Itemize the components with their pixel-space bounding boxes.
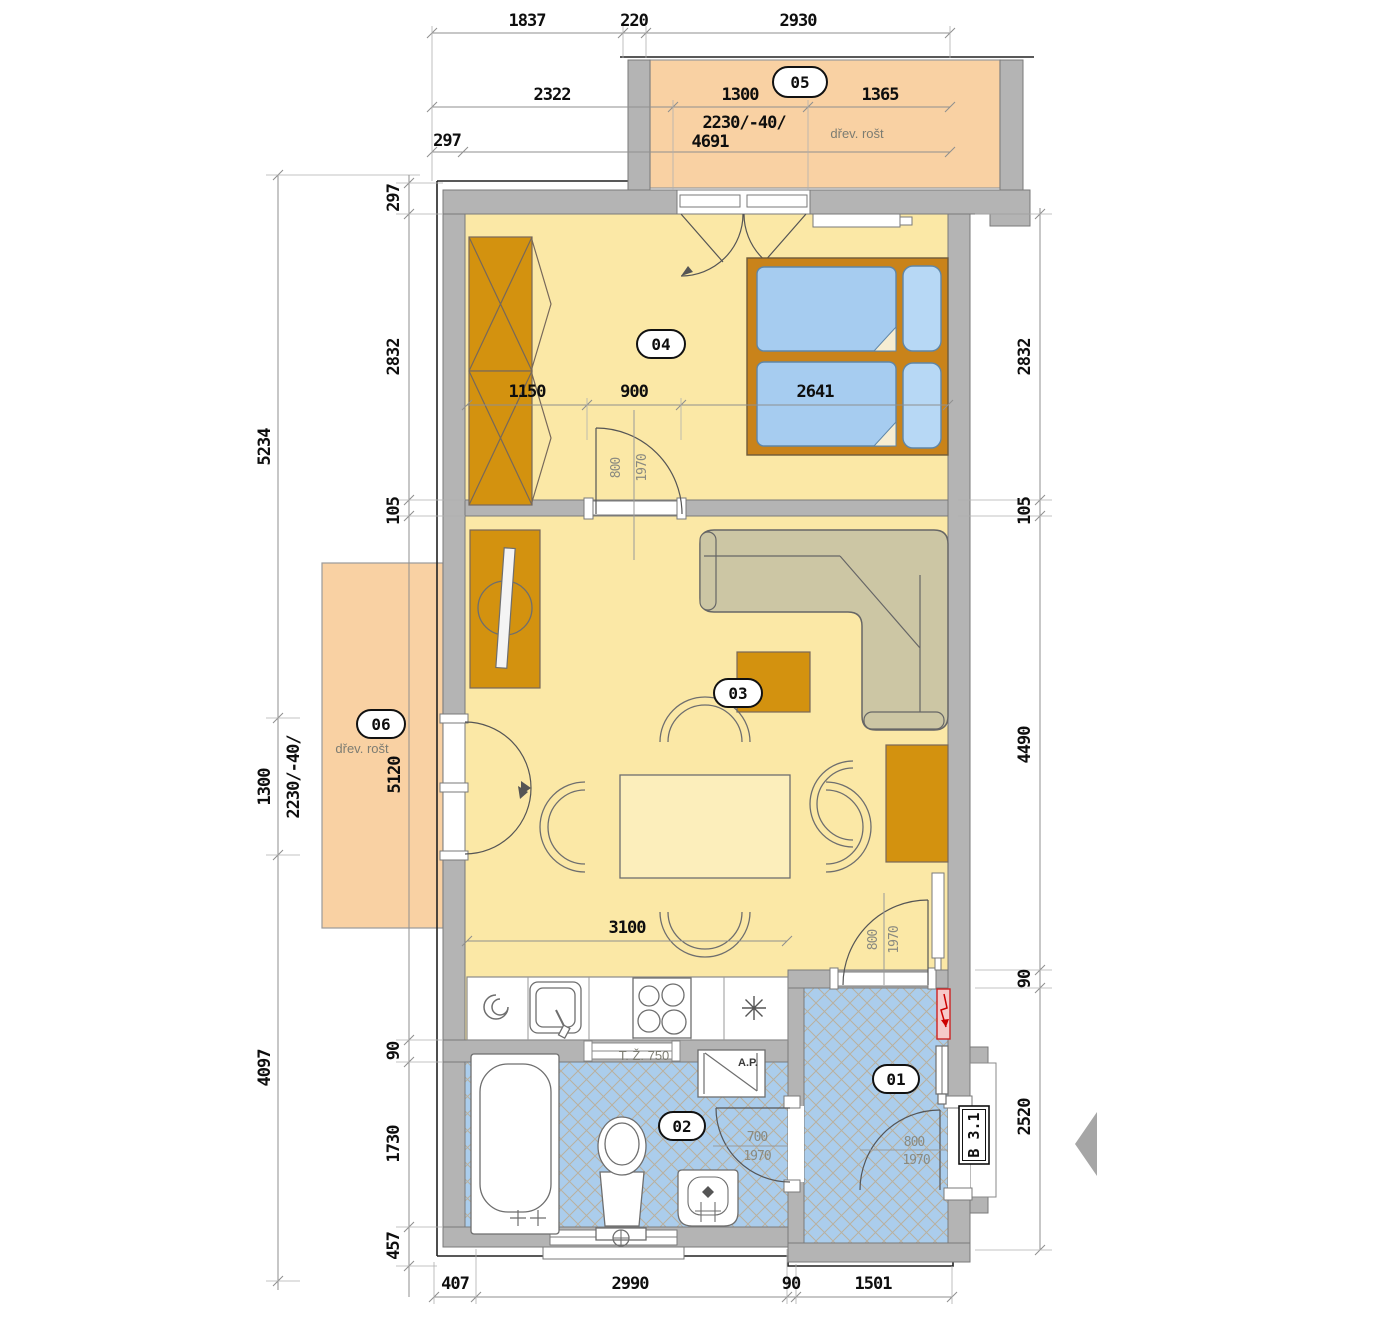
dim-top-2930: 2930 [780,11,818,31]
kitchen-window-label: T. Ž. 750 [619,1048,670,1063]
wall-hall-bottom [788,1243,970,1262]
dim-4490: 4490 [1015,726,1035,764]
dim-407: 407 [441,1274,469,1294]
bedroom-radiator [813,214,912,227]
dim-90l: 90 [384,1041,404,1060]
living-radiator [932,873,944,970]
bedroom-door-h: 1970 [635,454,650,481]
wall-bedroom-living [465,500,948,516]
living-door-w: 800 [866,930,881,951]
double-bed [747,258,948,455]
balcony-top-pillar-left [628,60,650,190]
mattress-bottom [757,362,896,446]
room-label-04-text: 04 [651,335,670,354]
room-label-05-text: 05 [790,73,809,92]
unit-tag-box: B 3.1 [959,1106,989,1164]
floor-plan-canvas: B 3.1 [0,0,1380,1320]
dim-2322: 2322 [534,85,571,105]
desk [886,745,948,862]
dim-1300l: 1300 [255,768,275,806]
dim-2230-left: 2230/-40/ [284,735,304,819]
balcony-top-grate-label: dřev. rošt [830,126,884,141]
dim-5234: 5234 [255,428,275,466]
kitchen [467,977,788,1040]
sink [530,982,581,1038]
room-label-02: 02 [659,1112,705,1140]
pillow-top [903,266,941,351]
washer-label: A.P. [738,1057,758,1069]
room-label-01-text: 01 [886,1070,905,1089]
dim-1300t: 1300 [722,85,760,105]
entry-recess-jamb-bottom [970,1197,988,1213]
dim-297t: 297 [433,131,461,151]
entry-door-h: 1970 [902,1153,929,1168]
tv-sideboard [470,530,540,688]
bathtub [471,1054,559,1234]
dim-2520: 2520 [1015,1098,1035,1136]
dim-2230-top: 2230/-40/ [702,113,786,133]
dim-4691: 4691 [692,132,730,152]
dim-top-1837: 1837 [509,11,546,31]
entry-arrow-icon [1075,1112,1097,1176]
wall-right [948,214,970,1245]
dim-105r: 105 [1015,496,1035,524]
dim-2641: 2641 [797,382,835,402]
room-label-05: 05 [773,67,827,97]
entry-recess-jamb-top [970,1047,988,1063]
balcony-top-pillar-right [1000,60,1023,190]
dim-900: 900 [620,382,648,402]
balcony-left-grate-label: dřev. rošt [335,741,389,756]
entry-door-w: 800 [904,1135,925,1150]
dim-457: 457 [384,1232,404,1260]
dim-3100: 3100 [609,918,647,938]
bath-door-w: 700 [747,1130,768,1145]
living-door-h: 1970 [887,926,902,953]
dim-1365: 1365 [862,85,900,105]
dim-4097: 4097 [255,1050,275,1087]
room-label-04: 04 [637,330,685,358]
dim-90r: 90 [1015,969,1035,988]
dim-5120: 5120 [385,756,405,794]
dim-1150: 1150 [509,382,547,402]
electrical-panel [937,989,950,1039]
dim-105l: 105 [384,496,404,524]
bath-door-h: 1970 [743,1149,770,1164]
wall-top-step [990,214,1030,226]
bedroom-door-w: 800 [609,458,624,479]
fridge-star-icon [742,996,766,1020]
hall-floor-tiles [804,988,948,1243]
dim-2990: 2990 [612,1274,650,1294]
dim-2832l: 2832 [384,339,404,376]
riser-shaft [936,1046,948,1104]
dim-2832r: 2832 [1015,339,1035,376]
unit-tag-label: B 3.1 [965,1112,983,1157]
mattress-top [757,267,896,351]
dim-top-220: 220 [620,11,648,31]
dim-1501: 1501 [855,1274,893,1294]
washbasin [678,1170,738,1226]
dim-1730: 1730 [384,1125,404,1163]
room-label-03-text: 03 [728,684,747,703]
dining-table [620,775,790,878]
room-label-06-text: 06 [371,715,390,734]
cooktop [633,978,691,1038]
room-label-01: 01 [873,1065,919,1093]
dim-90b: 90 [782,1274,801,1294]
room-label-02-text: 02 [672,1117,691,1136]
kitchen-counter [467,977,788,1040]
dim-297l: 297 [384,184,404,212]
room-label-03: 03 [714,679,762,707]
